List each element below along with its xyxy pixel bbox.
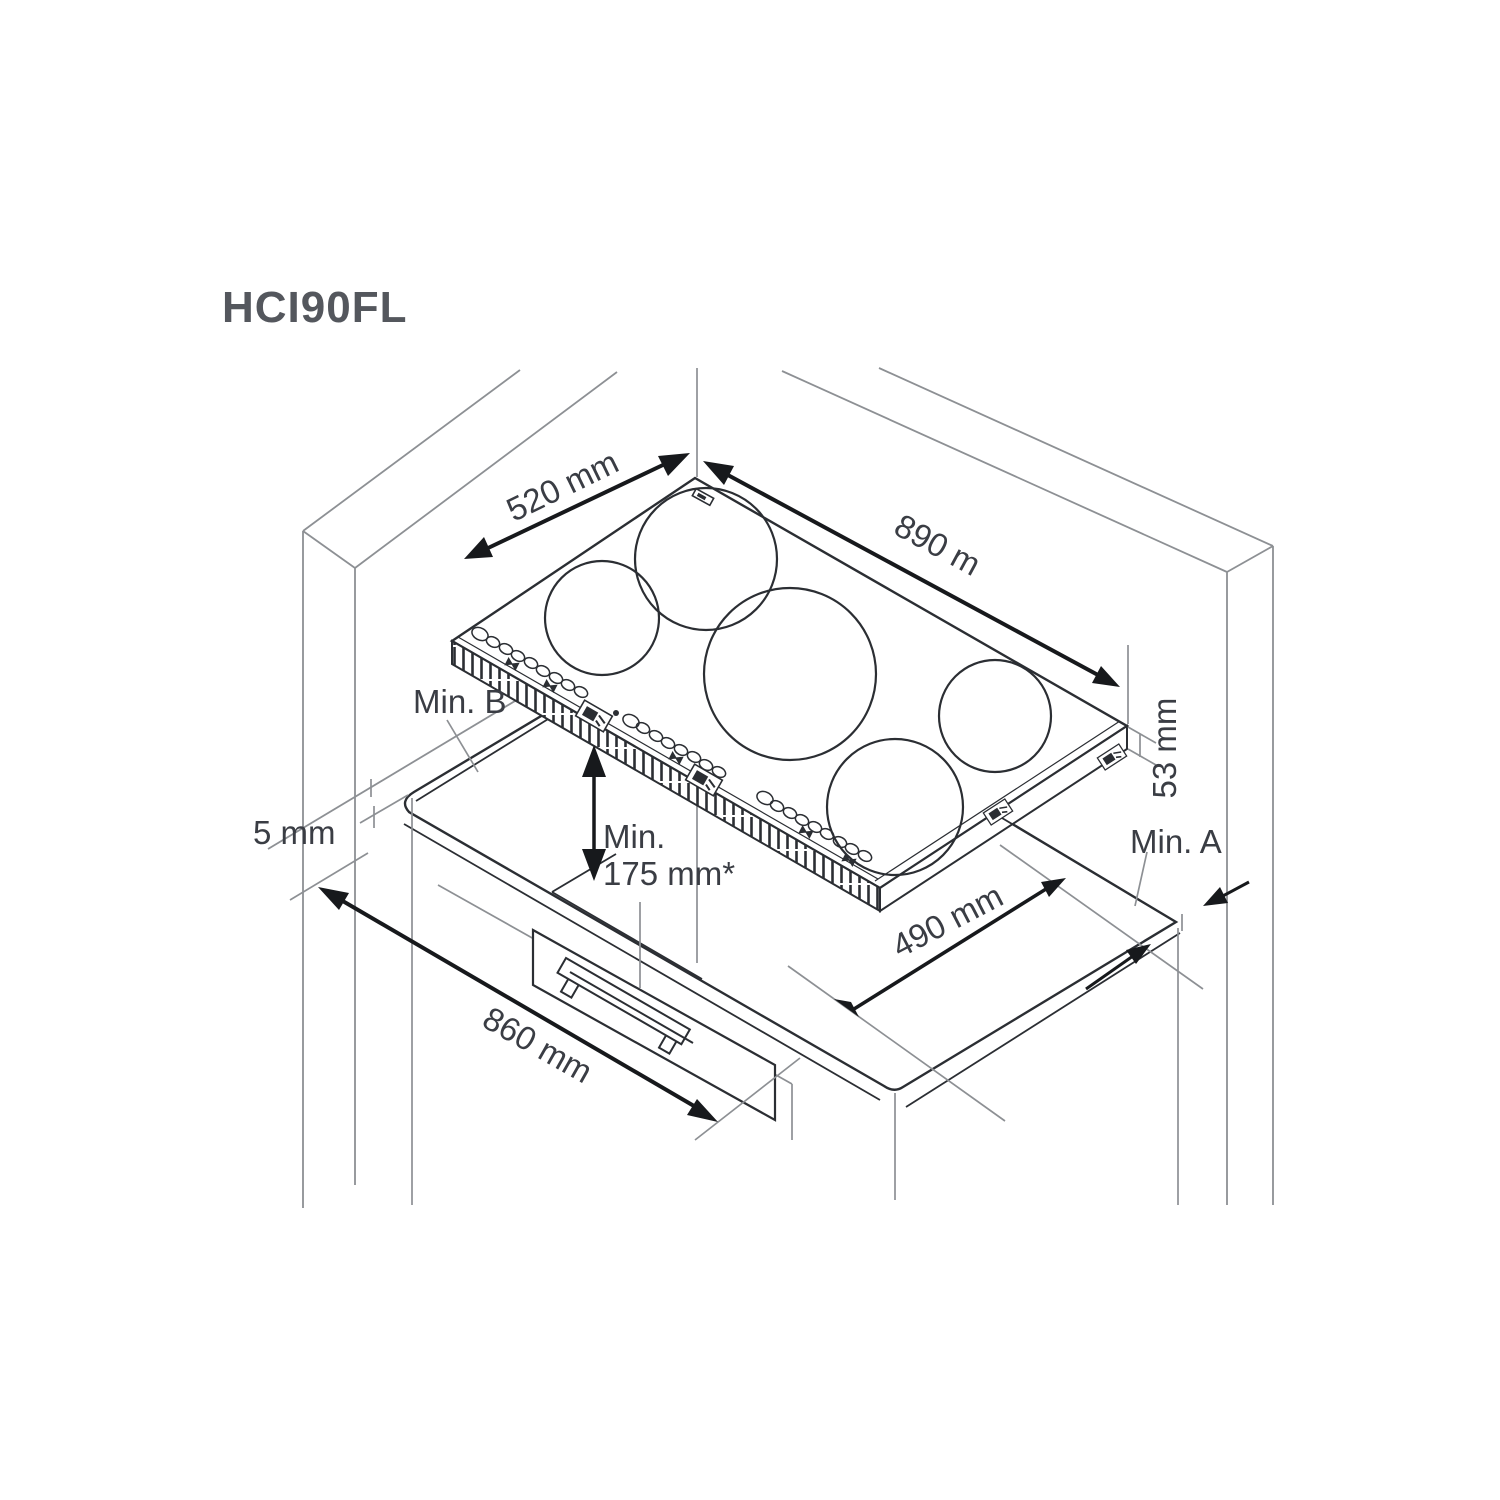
min-clearance-label-line2: 175 mm*	[603, 855, 735, 892]
dim-5-label: 5 mm	[253, 814, 336, 851]
hob-glass-surface	[452, 478, 1127, 888]
installation-diagram: HCI90FL 520 mm 890 m 53 mm Min. B Min. 1…	[0, 0, 1500, 1500]
min-b-label: Min. B	[413, 683, 507, 720]
drawer	[533, 930, 775, 1120]
min-a-label: Min. A	[1130, 823, 1222, 860]
dim-53-label: 53 mm	[1146, 698, 1183, 799]
min-clearance-label-line1: Min.	[603, 818, 665, 855]
page: HCI90FL 520 mm 890 m 53 mm Min. B Min. 1…	[0, 0, 1500, 1500]
dim-520-label: 520 mm	[501, 443, 624, 529]
counter-left-edge-extension	[360, 795, 408, 823]
page-title: HCI90FL	[222, 283, 407, 332]
indicator-dot-icon	[613, 710, 619, 716]
hob	[452, 478, 1127, 911]
dim-min-a	[1086, 882, 1249, 989]
